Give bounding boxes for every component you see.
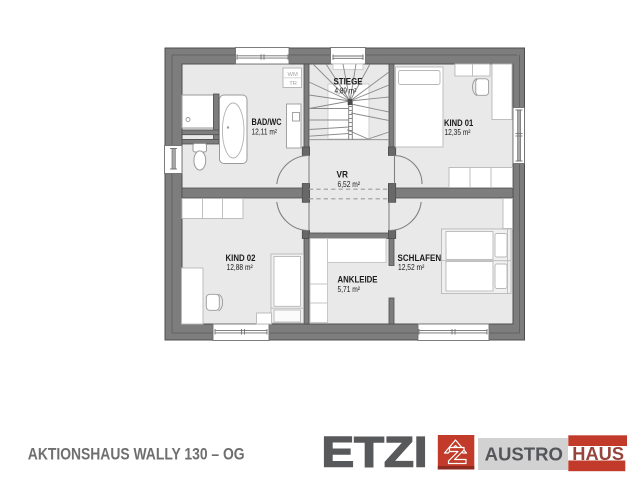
svg-text:STIEGE: STIEGE [334,77,363,87]
svg-text:5,71 m²: 5,71 m² [338,285,361,294]
svg-text:TR: TR [289,81,297,87]
svg-text:HAUS: HAUS [572,443,624,464]
svg-text:12,11 m²: 12,11 m² [252,128,278,137]
svg-text:12,35 m²: 12,35 m² [445,128,471,137]
svg-text:VR: VR [337,170,349,180]
svg-text:12,52 m²: 12,52 m² [398,263,425,272]
svg-text:ETZI: ETZI [322,429,428,476]
svg-text:4,89 m²: 4,89 m² [335,87,357,96]
svg-text:ANKLEIDE: ANKLEIDE [338,275,378,285]
svg-text:KIND 02: KIND 02 [226,253,256,263]
svg-text:SCHLAFEN: SCHLAFEN [398,253,442,263]
svg-text:KIND 01: KIND 01 [444,118,473,128]
svg-text:12,88 m²: 12,88 m² [227,263,253,272]
svg-text:6,52 m²: 6,52 m² [338,180,361,189]
svg-text:WM: WM [288,72,298,78]
svg-text:BAD/WC: BAD/WC [252,117,282,127]
svg-text:AUSTRO: AUSTRO [485,443,563,464]
svg-text:AKTIONSHAUS WALLY 130 – OG: AKTIONSHAUS WALLY 130 – OG [28,445,245,463]
